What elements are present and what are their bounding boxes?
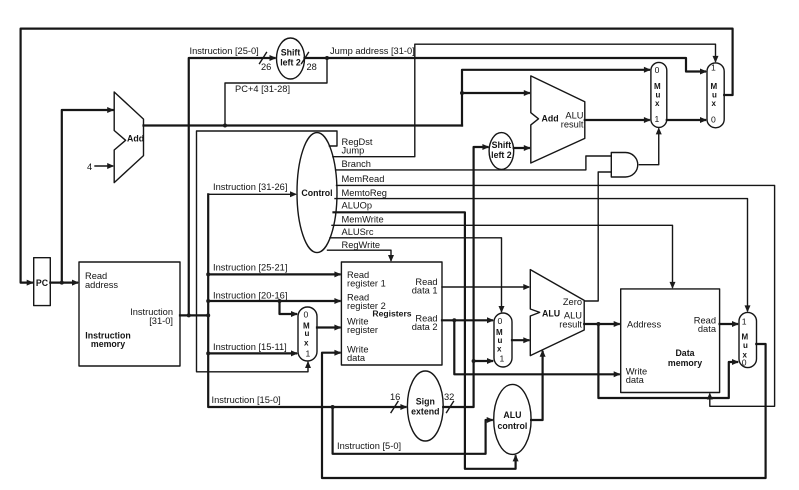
svg-text:data 2: data 2 [412,322,438,332]
svg-text:PC: PC [36,278,49,288]
svg-text:ALU: ALU [503,410,521,420]
svg-text:28: 28 [307,62,317,72]
svg-text:32: 32 [444,392,454,402]
svg-text:ALUSrc: ALUSrc [342,227,374,237]
svg-text:ALUOp: ALUOp [342,201,373,211]
svg-text:result: result [559,320,582,330]
svg-text:1: 1 [711,63,716,73]
svg-text:left 2: left 2 [491,150,512,160]
svg-text:x: x [497,345,502,354]
svg-text:extend: extend [411,407,439,417]
svg-text:Instruction [20-16]: Instruction [20-16] [213,291,287,301]
svg-text:PC+4 [31-28]: PC+4 [31-28] [235,84,290,94]
svg-text:1: 1 [742,317,747,327]
svg-text:Add: Add [542,114,559,124]
svg-text:memory: memory [668,358,702,368]
svg-text:Data: Data [675,348,694,358]
svg-text:x: x [743,351,748,360]
svg-text:0: 0 [711,115,716,125]
svg-text:Add: Add [127,134,144,144]
svg-text:data: data [626,375,645,385]
svg-text:Sign: Sign [416,397,435,407]
svg-text:Instruction [15-11]: Instruction [15-11] [213,342,287,352]
svg-text:x: x [655,99,660,108]
svg-text:register: register [347,325,378,335]
svg-text:register 1: register 1 [347,279,386,289]
svg-text:left 2: left 2 [280,58,301,68]
svg-text:1: 1 [306,349,311,359]
svg-text:ALU: ALU [542,309,560,319]
svg-text:Jump: Jump [342,146,365,156]
svg-text:1: 1 [500,354,505,364]
svg-text:0: 0 [304,310,309,320]
svg-text:1: 1 [655,114,660,124]
svg-text:Shift: Shift [281,48,301,58]
svg-text:0: 0 [655,65,660,75]
svg-text:control: control [497,421,527,431]
svg-text:4: 4 [87,162,92,172]
svg-text:Shift: Shift [492,140,512,150]
svg-text:Control: Control [301,188,332,198]
svg-text:x: x [712,99,717,108]
svg-text:Instruction [25-0]: Instruction [25-0] [190,46,259,56]
svg-text:RegWrite: RegWrite [342,240,381,250]
svg-text:MemRead: MemRead [342,174,385,184]
svg-text:26: 26 [261,62,271,72]
svg-text:memory: memory [91,339,125,349]
svg-text:Instruction [31-26]: Instruction [31-26] [213,182,287,192]
svg-text:[31-0]: [31-0] [149,316,173,326]
svg-text:MemtoReg: MemtoReg [342,188,387,198]
svg-text:16: 16 [390,392,400,402]
svg-text:Address: Address [627,320,661,330]
svg-text:Instruction [5-0]: Instruction [5-0] [337,441,401,451]
svg-text:u: u [743,341,748,350]
svg-text:Branch: Branch [342,159,371,169]
svg-text:0: 0 [498,316,503,326]
svg-text:u: u [305,329,310,338]
svg-text:data: data [347,353,366,363]
svg-text:x: x [304,339,309,348]
svg-text:Jump address [31-0]: Jump address [31-0] [330,46,415,56]
svg-text:Registers: Registers [372,309,411,319]
svg-text:MemWrite: MemWrite [342,214,384,224]
svg-text:address: address [85,280,118,290]
svg-text:result: result [561,120,584,130]
svg-text:Instruction [15-0]: Instruction [15-0] [212,395,281,405]
svg-text:data: data [698,324,717,334]
svg-text:Instruction [25-21]: Instruction [25-21] [213,263,287,273]
svg-text:Zero: Zero [563,297,582,307]
svg-text:data 1: data 1 [412,286,438,296]
